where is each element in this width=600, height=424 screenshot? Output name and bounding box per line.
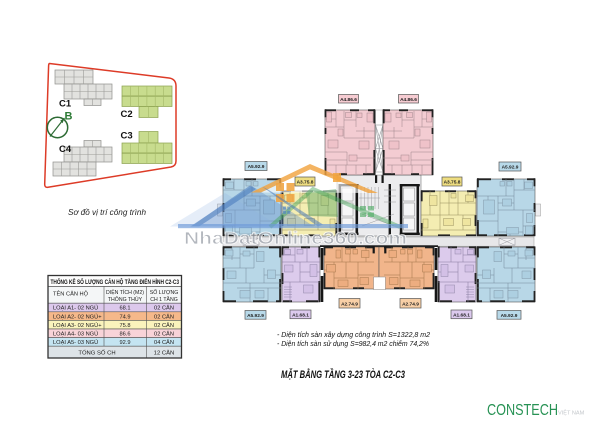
svg-text:74.9: 74.9 (119, 314, 130, 320)
svg-text:NhaDatOnline360.com: NhaDatOnline360.com (184, 228, 407, 248)
svg-text:92.9: 92.9 (119, 340, 130, 346)
svg-text:A5.92.9: A5.92.9 (247, 313, 264, 319)
svg-text:A5.92.9: A5.92.9 (502, 165, 519, 171)
svg-text:A4.86.6: A4.86.6 (340, 97, 357, 103)
svg-text:LOẠI A4- 03 NGỦ: LOẠI A4- 03 NGỦ (53, 331, 98, 338)
svg-text:A2.74.9: A2.74.9 (341, 301, 358, 307)
svg-text:02 CĂN: 02 CĂN (154, 313, 174, 320)
svg-text:LOẠI A1- 02 NGỦ: LOẠI A1- 02 NGỦ (53, 305, 98, 312)
svg-text:12 CĂN: 12 CĂN (154, 349, 175, 356)
svg-text:B: B (65, 111, 73, 123)
svg-text:A5.92.9: A5.92.9 (248, 164, 265, 170)
svg-text:C2: C2 (121, 109, 133, 120)
svg-text:A3.75.8: A3.75.8 (444, 180, 461, 186)
svg-text:C4: C4 (59, 144, 72, 155)
svg-text:VIỆT NAM: VIỆT NAM (558, 409, 585, 417)
svg-text:TỔNG SỐ CH: TỔNG SỐ CH (78, 349, 115, 356)
svg-text:A1.68.1: A1.68.1 (292, 312, 309, 318)
svg-text:86.6: 86.6 (119, 332, 130, 338)
svg-text:A2.74.9: A2.74.9 (402, 301, 419, 307)
svg-text:02 CĂN: 02 CĂN (154, 322, 174, 329)
svg-text:C1: C1 (59, 99, 72, 110)
svg-text:MẶT BẰNG TẦNG 3-23 TÒA C2-C3: MẶT BẰNG TẦNG 3-23 TÒA C2-C3 (281, 368, 405, 381)
svg-text:02 CĂN: 02 CĂN (154, 331, 174, 338)
svg-text:THÔNG THỦY: THÔNG THỦY (108, 296, 143, 303)
svg-text:A1.68.1: A1.68.1 (453, 312, 470, 318)
svg-text:A4.86.6: A4.86.6 (400, 97, 417, 103)
svg-text:68.1: 68.1 (119, 306, 130, 312)
svg-text:02 CĂN: 02 CĂN (154, 305, 174, 312)
svg-text:75.8: 75.8 (119, 323, 130, 329)
svg-text:DIỆN TÍCH (M2): DIỆN TÍCH (M2) (106, 288, 144, 296)
svg-text:- Diện tích sàn xây dựng công: - Diện tích sàn xây dựng công trình S=13… (277, 330, 430, 339)
svg-text:A3.75.8: A3.75.8 (297, 180, 314, 186)
svg-text:- Diện tích sàn sử dụng S=982,: - Diện tích sàn sử dụng S=982,4 m2 chiếm… (277, 339, 430, 348)
svg-text:A5.92.9: A5.92.9 (501, 313, 518, 319)
svg-text:CONSTECH: CONSTECH (487, 402, 558, 419)
svg-text:LOẠI A5- 03 NGỦ: LOẠI A5- 03 NGỦ (53, 339, 98, 346)
svg-text:04 CĂN: 04 CĂN (154, 339, 174, 346)
svg-text:LOẠI A2- 02 NGỦ+: LOẠI A2- 02 NGỦ+ (53, 313, 102, 320)
svg-text:Sơ đồ vị trí công trình: Sơ đồ vị trí công trình (68, 207, 146, 217)
svg-text:SỐ LƯỢNG: SỐ LƯỢNG (150, 289, 178, 296)
svg-text:TÊN CĂN HỘ: TÊN CĂN HỘ (53, 290, 89, 298)
svg-text:CH 1 TẦNG: CH 1 TẦNG (150, 296, 178, 303)
svg-text:LOẠI A3- 02 NGỦ+: LOẠI A3- 02 NGỦ+ (53, 322, 102, 329)
svg-text:C3: C3 (121, 131, 133, 142)
